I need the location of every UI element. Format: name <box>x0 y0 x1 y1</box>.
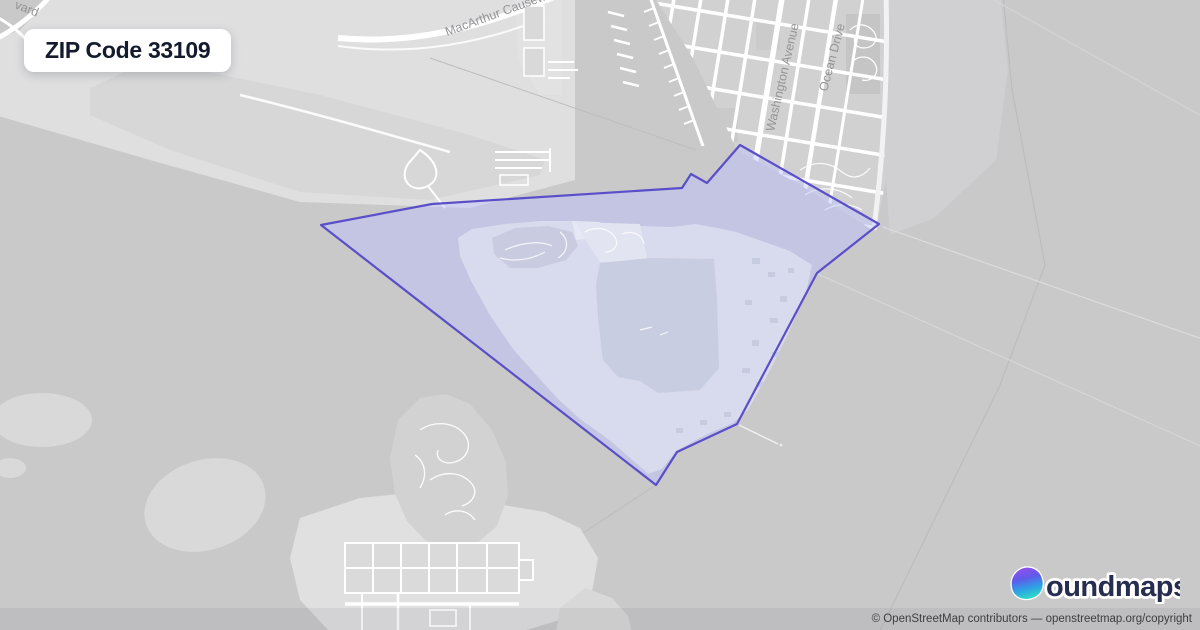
brand-logo[interactable]: oundmaps <box>1008 564 1180 604</box>
boundmaps-wordmark: oundmaps <box>1046 571 1180 603</box>
map-graphics: MacArthur Causeway vard Washington Avenu… <box>0 0 1200 630</box>
condo-block <box>596 258 719 393</box>
attribution-dash: — <box>1031 613 1043 625</box>
zip-code-badge-label: ZIP Code 33109 <box>45 37 210 63</box>
osm-copyright-link[interactable]: openstreetmap.org/copyright <box>1046 613 1192 625</box>
map-canvas[interactable]: MacArthur Causeway vard Washington Avenu… <box>0 0 1200 630</box>
osm-contributors-text: © OpenStreetMap contributors <box>872 613 1028 625</box>
attribution-bar: © OpenStreetMap contributors — openstree… <box>0 608 1200 630</box>
boundmaps-droplet-icon <box>1012 568 1043 599</box>
zip-code-badge: ZIP Code 33109 <box>24 29 231 72</box>
park-block <box>846 14 880 94</box>
